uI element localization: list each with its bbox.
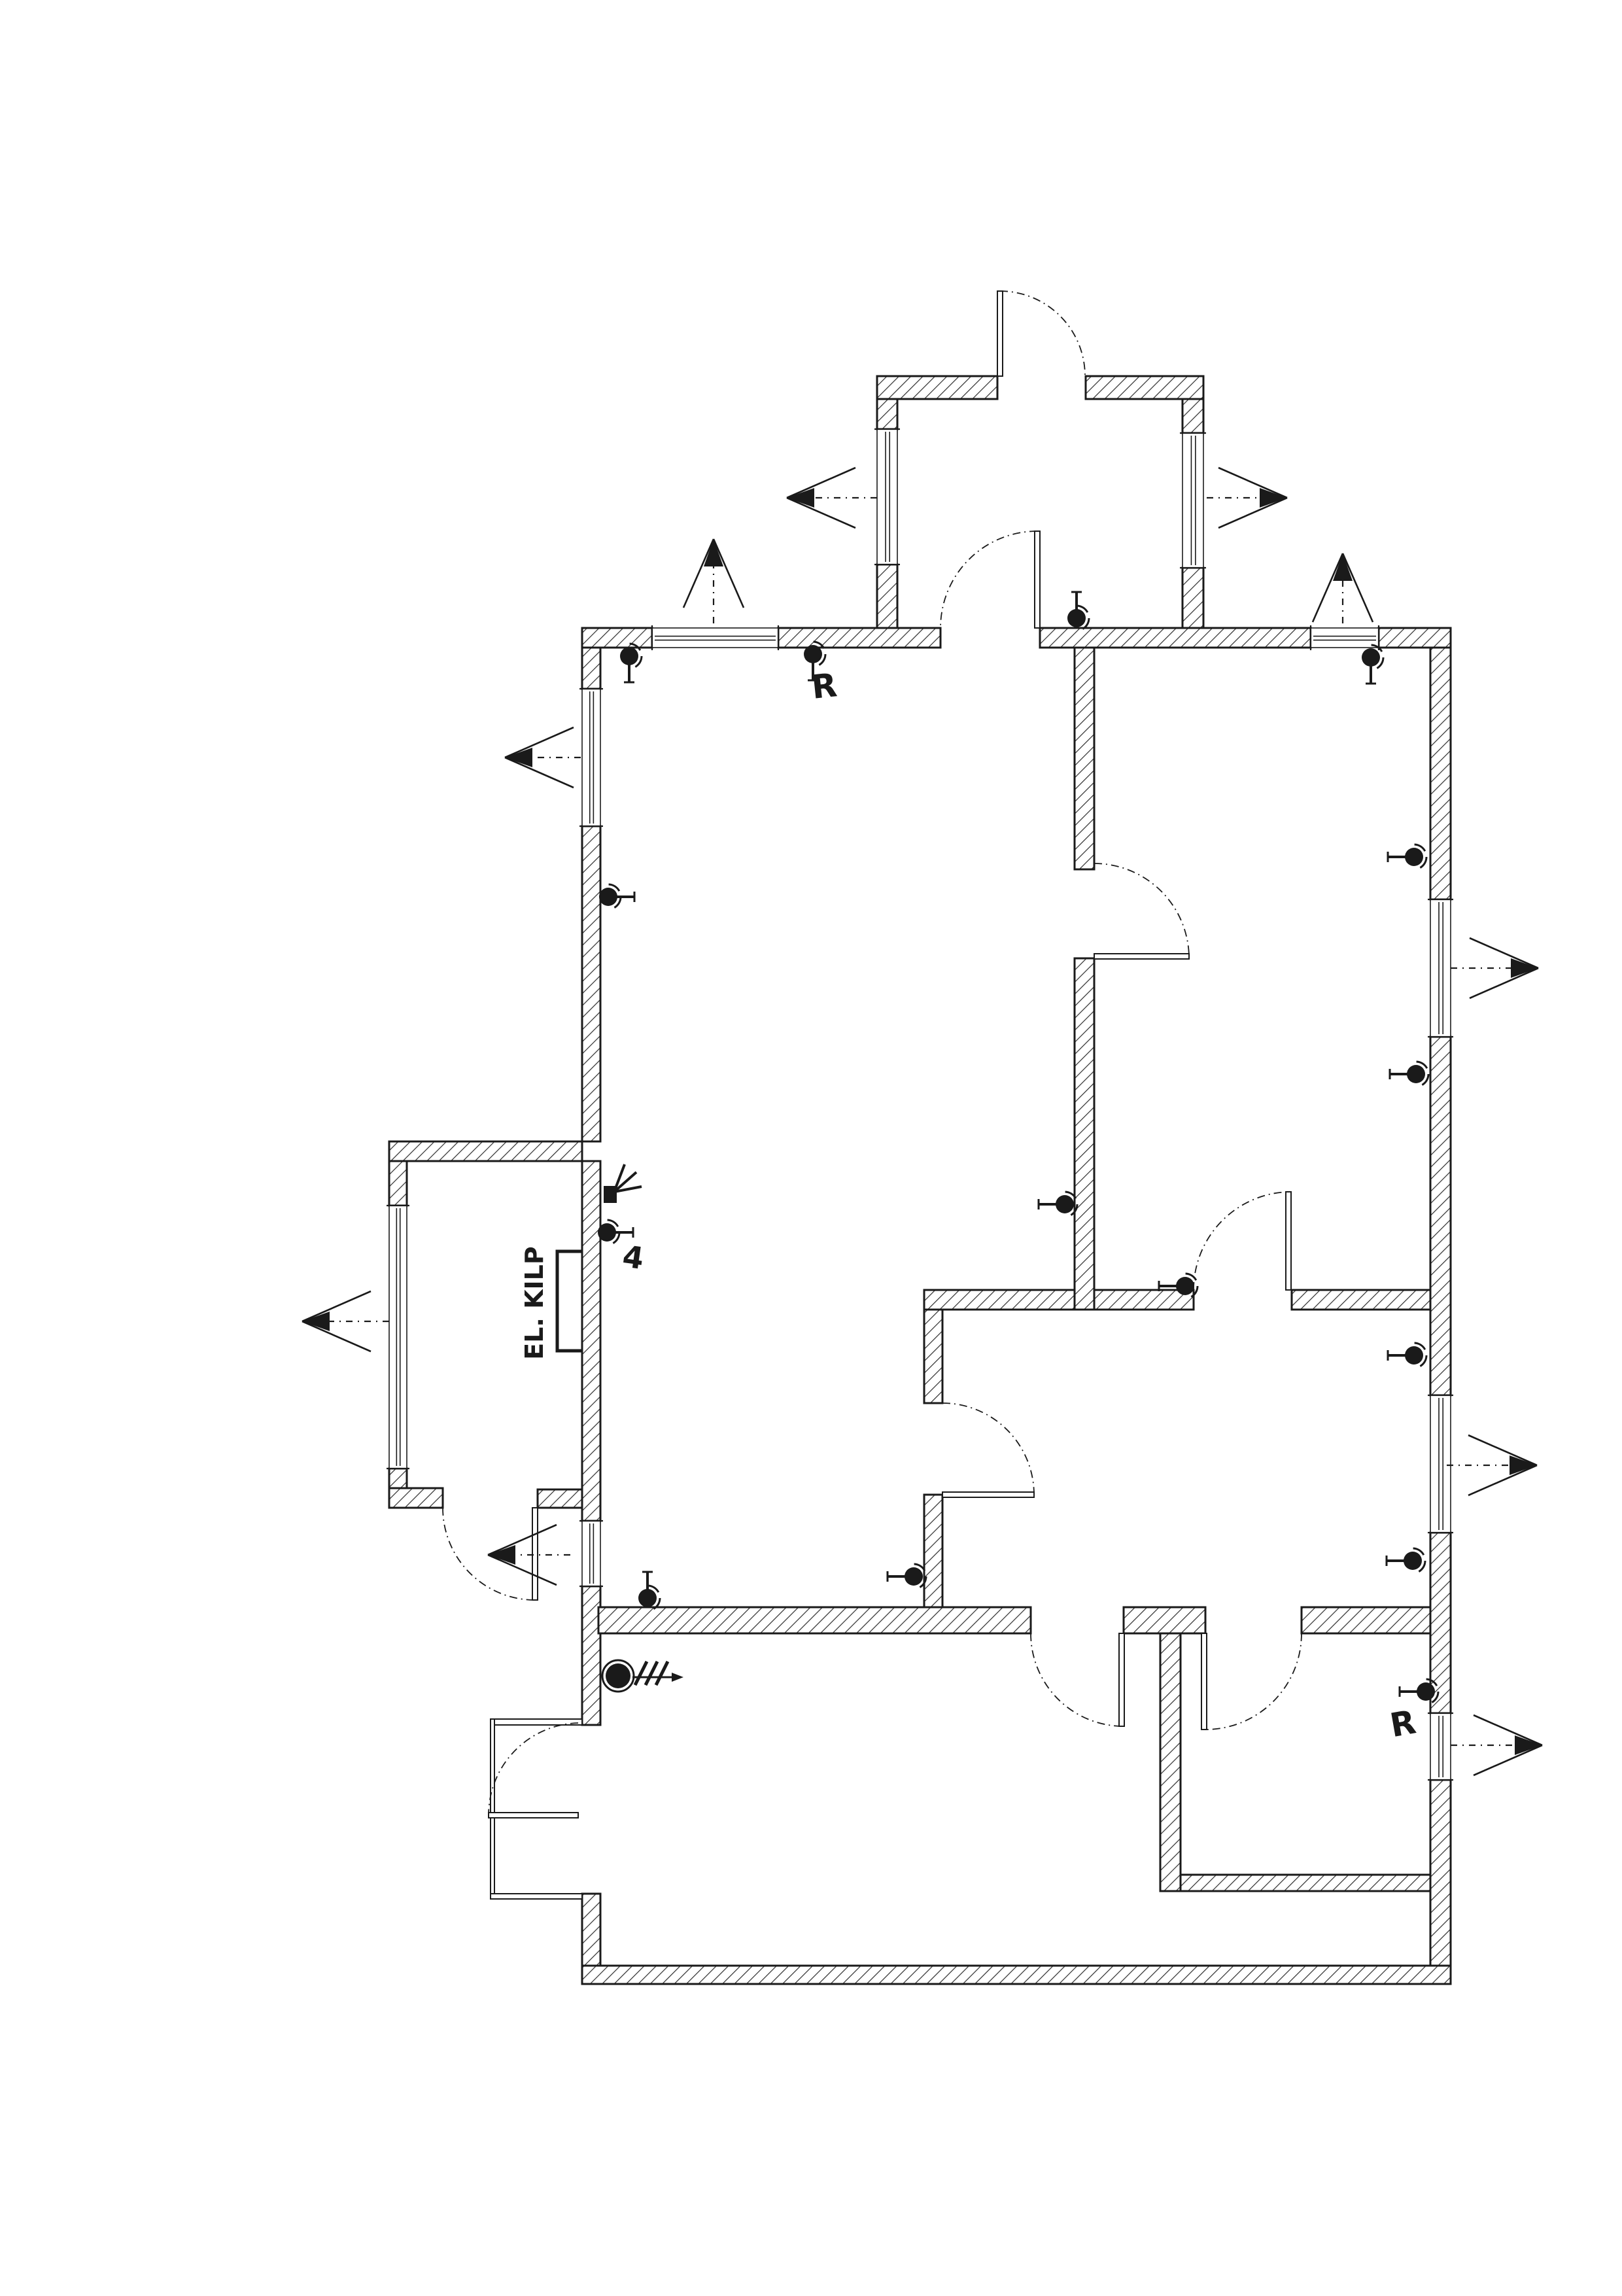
lamp-centerroom-westwall (888, 1564, 926, 1589)
wall-east-wall-4 (1430, 1780, 1451, 1984)
window-east-window-lower (1428, 1713, 1453, 1780)
window-frame (652, 628, 778, 648)
wall-main-top-wall-2 (778, 628, 940, 648)
lamp-centralwall (1039, 1192, 1077, 1217)
arrow-barb (1474, 1715, 1542, 1745)
window-annex-west-window (387, 1206, 409, 1469)
door-leaf (942, 1492, 1034, 1497)
arrow-barb (1218, 498, 1287, 528)
fan-symbol (602, 1660, 683, 1692)
wall-centerroom-west-wall-lower (924, 1495, 942, 1607)
lamp-westwall-1 (596, 884, 634, 909)
fan-hatch-stroke (635, 1661, 647, 1685)
wall-west-wall-2 (582, 826, 600, 1141)
lamp-dome (1404, 1552, 1422, 1570)
door-leaf (1035, 531, 1040, 628)
doors-layer (443, 291, 1302, 1818)
window-frame (877, 429, 897, 565)
arrow-barb (787, 498, 855, 528)
lamp-dome (1407, 1065, 1425, 1083)
exit-arrow-west-exit (488, 1525, 570, 1585)
arrow-barb (1468, 1465, 1537, 1495)
el-panel-bracket (557, 1251, 582, 1351)
window-west-exit-window (579, 1521, 603, 1586)
arrow-barb (302, 1291, 371, 1321)
arrow-barb (505, 757, 574, 788)
walls-layer (389, 376, 1451, 1984)
switch-symbol (604, 1164, 642, 1203)
window-frame (389, 1206, 407, 1469)
lamp-dome (1362, 648, 1380, 667)
lamp-eastwall-1 (1388, 844, 1426, 869)
exit-arrow-vestibule-west (787, 468, 877, 528)
light-wall-porch-north-wall (491, 1719, 582, 1725)
floor-plan-svg: R4REL. KILP (0, 0, 1622, 2296)
fan-hatch-stroke (656, 1661, 668, 1685)
window-east-window-middle (1428, 1395, 1453, 1533)
arrow-barb (1470, 968, 1538, 998)
wall-corridor-wall-mid (1124, 1607, 1205, 1633)
door-corridor-door-east (1201, 1633, 1302, 1730)
wall-west-wall-5 (582, 1894, 600, 1966)
arrow-barb (1313, 553, 1343, 622)
lamp-dome (599, 888, 617, 906)
wall-corridor-wall-west (598, 1607, 1031, 1633)
wall-main-top-wall-1 (582, 628, 652, 648)
wall-vestibule-top-wall-east (1086, 376, 1203, 399)
wall-annex-west-wall-upper (389, 1161, 407, 1206)
lamp-vestibule (1064, 592, 1089, 631)
arrow-barb (787, 468, 855, 498)
door-swing-arc (1031, 1633, 1124, 1726)
window-east-window-upper (1428, 899, 1453, 1037)
door-leaf (532, 1508, 538, 1600)
window-vestibule-east-window (1180, 433, 1206, 568)
door-swing-arc (1094, 863, 1189, 958)
window-frame (1311, 628, 1379, 648)
lamp-dome (1056, 1195, 1074, 1213)
label-4-left: 4 (621, 1238, 646, 1276)
exit-arrow-east-lower (1451, 1715, 1542, 1775)
wall-centerroom-west-wall-upper (924, 1310, 942, 1403)
window-frame (1430, 1395, 1451, 1533)
door-swing-arc (1194, 1192, 1288, 1290)
wall-east-wall-3 (1430, 1533, 1451, 1713)
light-wall-porch-west-wall (491, 1719, 494, 1899)
wall-vestibule-east-wall-upper (1182, 399, 1203, 433)
door-center-room-west-door (942, 1403, 1034, 1497)
wall-central-wall-upper (1075, 648, 1094, 869)
exit-arrow-annex (302, 1291, 389, 1351)
door-leaf (1094, 954, 1189, 959)
arrow-barb (1468, 1435, 1537, 1465)
window-vestibule-west-window (874, 429, 900, 565)
wall-main-top-wall-3 (1040, 628, 1311, 648)
lamp-dome (638, 1589, 657, 1607)
drawing-sheet: R4REL. KILP (0, 0, 1622, 2296)
door-swing-arc (1204, 1633, 1302, 1730)
lamp-dome (1176, 1277, 1194, 1295)
door-right-room-south-door (1194, 1192, 1291, 1290)
wall-vestibule-top-wall-west (877, 376, 997, 399)
fan-body (606, 1663, 630, 1688)
door-leaf (1286, 1192, 1291, 1290)
wall-vestibule-west-wall-lower (877, 565, 897, 628)
door-porch-door (489, 1723, 578, 1818)
arrow-barb (505, 727, 574, 757)
wall-west-wall-3 (582, 1161, 600, 1521)
door-vestibule-inner-door (940, 531, 1040, 628)
window-frame (582, 1521, 600, 1586)
window-north-window-west (652, 625, 778, 650)
lamp-dome (1067, 609, 1086, 627)
arrow-barb (1218, 468, 1287, 498)
label-r-top: R (810, 666, 838, 706)
arrow-barb (1343, 553, 1373, 622)
labels-layer: R4REL. KILP (520, 666, 1419, 1745)
lamp-dome (804, 645, 822, 663)
exit-arrow-east-upper (1451, 938, 1538, 998)
door-swing-arc (940, 531, 1037, 628)
window-north-window-east (1311, 625, 1379, 650)
wall-annex-south-wall-east (538, 1489, 582, 1508)
lamp-dome (1405, 848, 1423, 866)
lamp-eastwall-4 (1387, 1548, 1425, 1573)
wall-centerroom-north-wall-east (1292, 1290, 1430, 1310)
door-corridor-door-west (1031, 1633, 1124, 1726)
arrow-barb (1470, 938, 1538, 968)
arrow-barb (488, 1525, 557, 1555)
wall-central-wall-lower (1075, 958, 1094, 1310)
arrow-barb (683, 539, 714, 608)
window-west-window (579, 689, 603, 826)
door-swing-arc (1000, 291, 1085, 376)
lamp-dome (905, 1567, 923, 1586)
exit-arrow-west-window (505, 727, 581, 788)
wall-bottomright-room-south-wall (1181, 1875, 1430, 1891)
wall-south-wall (582, 1966, 1451, 1984)
lamp-topwall-1 (617, 644, 642, 682)
door-vestibule-exterior-door (997, 291, 1085, 376)
door-central-wall-door (1094, 863, 1189, 959)
wall-east-wall-2 (1430, 1037, 1451, 1395)
arrow-barb (488, 1555, 557, 1585)
lamp-dome (1417, 1682, 1435, 1701)
wall-corridor-wall-east (1302, 1607, 1430, 1633)
wall-annex-west-wall-lower (389, 1469, 407, 1488)
lamp-dome (620, 647, 638, 665)
wall-main-top-wall-4 (1379, 628, 1451, 648)
fan-arrow-head (672, 1673, 683, 1682)
door-leaf (997, 291, 1003, 376)
lamp-dome (598, 1223, 616, 1242)
arrow-barb (714, 539, 744, 608)
wall-centerroom-north-wall-west (924, 1290, 1075, 1310)
fan-hatch-stroke (646, 1661, 657, 1685)
wall-annex-south-wall-west (389, 1488, 443, 1508)
exit-arrow-north-east (1313, 553, 1373, 623)
lamp-topwall-3 (1358, 645, 1383, 684)
lamp-dome (1405, 1346, 1423, 1365)
light-wall-porch-south-wall (491, 1894, 582, 1899)
wall-centerroom-north-wall-mid (1094, 1290, 1194, 1310)
wall-bottom-divider-wall (1160, 1633, 1181, 1891)
wall-west-wall-1 (582, 648, 600, 689)
lamp-eastwall-2 (1390, 1062, 1428, 1087)
door-leaf (1119, 1633, 1124, 1726)
label-r-bottomright: R (1387, 1703, 1419, 1745)
wall-annex-top-wall (389, 1141, 582, 1161)
wall-vestibule-west-wall-upper (877, 399, 897, 429)
lamp-eastwall-3 (1388, 1343, 1426, 1368)
wall-east-wall-1 (1430, 648, 1451, 899)
door-swing-arc (942, 1403, 1034, 1495)
window-frame (1182, 433, 1203, 568)
door-swing-arc (489, 1723, 578, 1815)
door-leaf (1201, 1633, 1207, 1730)
electrical-symbols-layer (557, 592, 1438, 1704)
arrow-barb (1474, 1745, 1542, 1775)
label-el-kilp: EL. KILP (520, 1246, 549, 1360)
arrow-barb (302, 1321, 371, 1351)
wall-vestibule-east-wall-lower (1182, 568, 1203, 628)
window-frame (582, 689, 600, 826)
door-leaf (489, 1813, 578, 1818)
exit-arrow-vestibule-east (1207, 468, 1287, 528)
lamp-corridorwall (635, 1572, 660, 1610)
window-frame (1430, 1713, 1451, 1780)
exit-arrow-north-west (683, 539, 744, 623)
exit-arrow-east-middle (1447, 1435, 1537, 1495)
window-frame (1430, 899, 1451, 1037)
